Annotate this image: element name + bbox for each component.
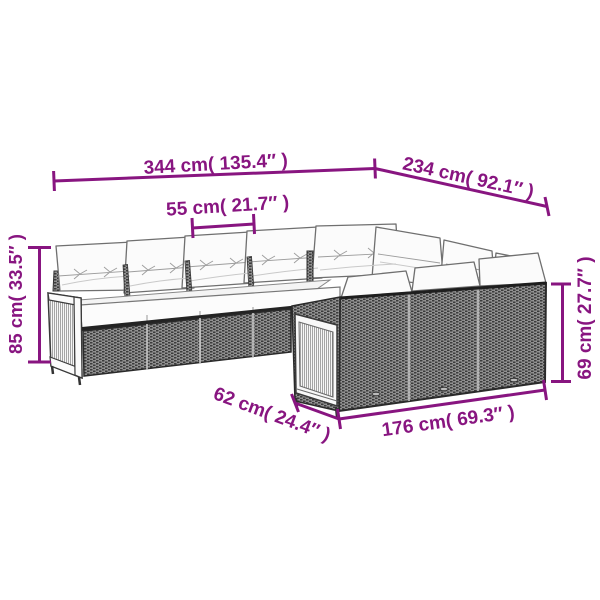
svg-text:85 cm( 33.5″ ): 85 cm( 33.5″ ) [5, 234, 26, 354]
svg-text:69 cm( 27.7″ ): 69 cm( 27.7″ ) [575, 256, 596, 379]
